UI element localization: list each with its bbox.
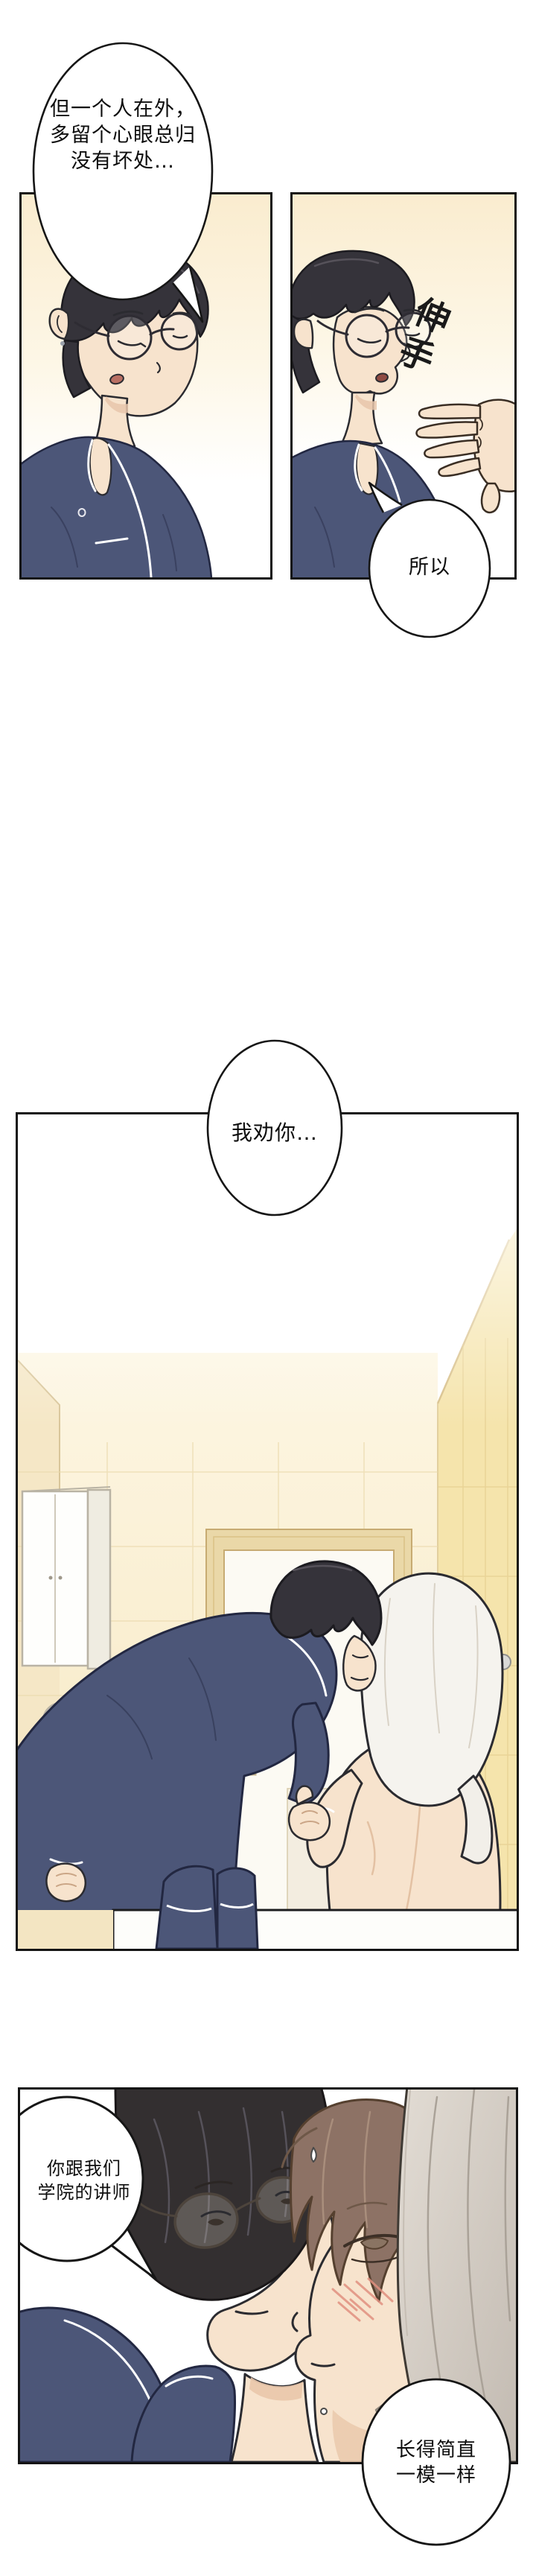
bubble-1-line-1: 但一个人在外，: [31, 96, 214, 122]
bubble-4-line-2: 学院的讲师: [25, 2180, 144, 2204]
floor: [18, 1910, 113, 1949]
speech-bubble-1-shape: [31, 41, 214, 333]
speech-bubble-3: 我劝你…: [206, 1038, 343, 1217]
bubble-1-line-3: 没有坏处…: [31, 148, 214, 174]
head-towel: [361, 1573, 502, 1806]
speech-bubble-5: 长得简直 一模一样: [360, 2377, 512, 2547]
pajama-legs: [156, 1866, 258, 1949]
bubble-5-line-1: 长得简直: [360, 2437, 512, 2463]
speech-bubble-2: 所以: [362, 477, 496, 642]
bubble-2-text: 所以: [369, 555, 490, 580]
panel-3: [16, 1112, 519, 1951]
speech-bubble-1: 但一个人在外， 多留个心眼总归 没有坏处…: [31, 41, 214, 333]
wall-cabinet: [22, 1487, 110, 1669]
panel-3-illustration: [18, 1114, 517, 1949]
webtoon-page: 伸手 但一个人在外， 多留个心眼总归 没有坏处… 所以: [0, 0, 536, 2576]
bubble-4-line-1: 你跟我们: [25, 2157, 144, 2180]
sweat-drop-2: [321, 2408, 327, 2414]
earring: [60, 341, 65, 346]
bubble-5-line-2: 一模一样: [360, 2463, 512, 2488]
sweat-drop-1: [311, 2148, 316, 2162]
bubble-3-text: 我劝你…: [206, 1120, 343, 1146]
bubble-1-line-2: 多留个心眼总归: [31, 122, 214, 148]
